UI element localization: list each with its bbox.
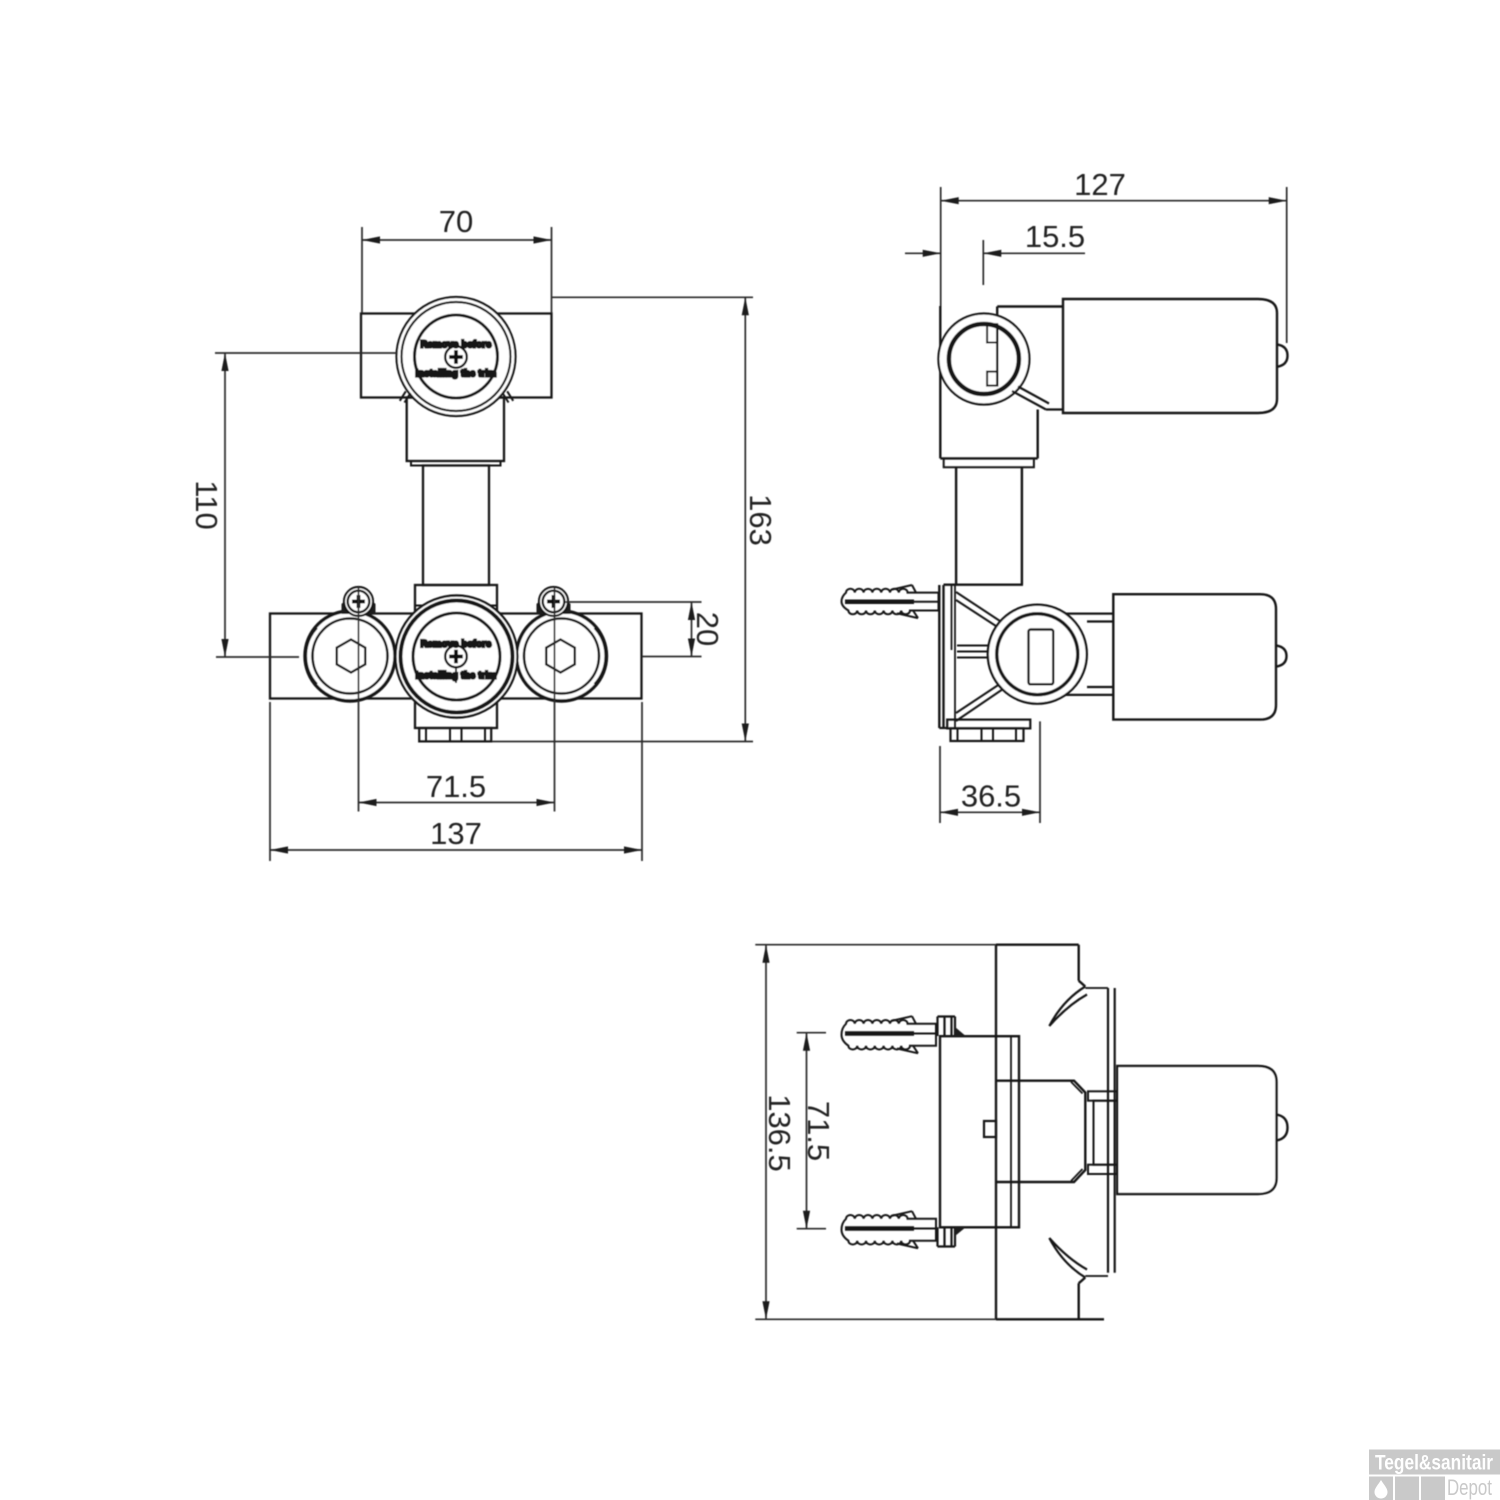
svg-text:Installing the trim: Installing the trim — [416, 369, 497, 380]
svg-text:136.5: 136.5 — [762, 1094, 797, 1172]
svg-text:137: 137 — [430, 816, 482, 851]
svg-text:Remove before: Remove before — [421, 639, 492, 650]
svg-text:Depot: Depot — [1447, 1475, 1492, 1500]
svg-text:Remove before: Remove before — [421, 340, 492, 351]
svg-text:163: 163 — [743, 494, 778, 546]
svg-text:71.5: 71.5 — [426, 769, 486, 804]
svg-text:110: 110 — [189, 480, 224, 529]
svg-text:127: 127 — [1074, 167, 1126, 202]
svg-text:15.5: 15.5 — [1025, 219, 1085, 254]
svg-text:36.5: 36.5 — [961, 779, 1021, 814]
svg-text:71.5: 71.5 — [801, 1101, 836, 1161]
svg-text:20: 20 — [690, 612, 725, 646]
svg-text:70: 70 — [439, 204, 473, 239]
svg-text:Tegel&sanitair: Tegel&sanitair — [1375, 1451, 1493, 1475]
